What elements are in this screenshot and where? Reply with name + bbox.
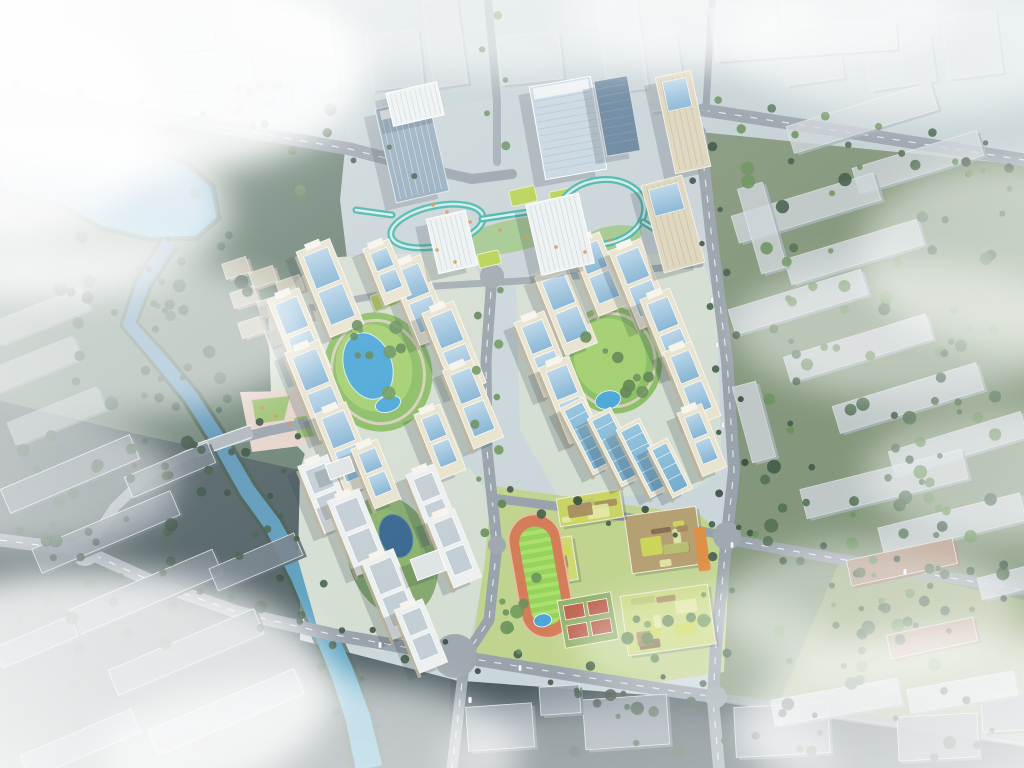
atmosphere-layer [0,0,1024,768]
edge-vignette [0,0,1024,768]
aerial-masterplan-render: Aerial architectural rendering of a mixe… [0,0,1024,768]
masterplan-scene [0,0,1024,768]
